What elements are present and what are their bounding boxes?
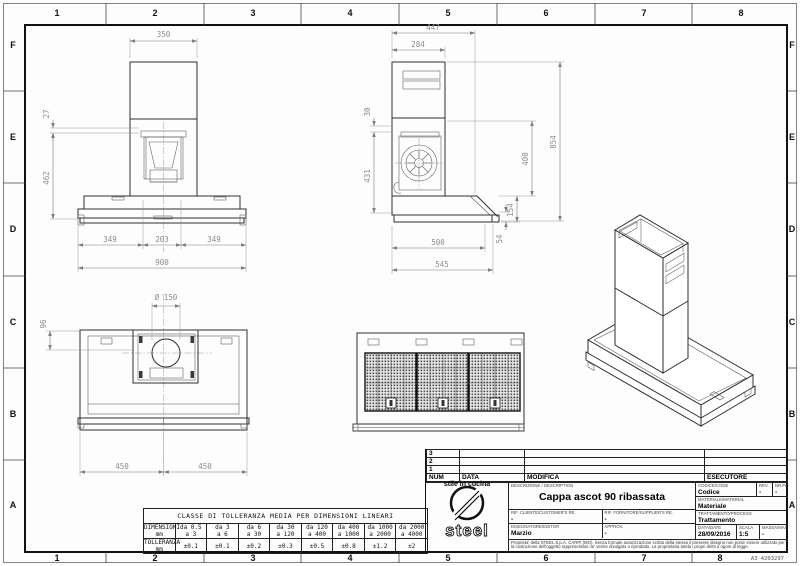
tolerance-range: da 30 a 120 <box>270 524 302 539</box>
customer-ref-value: - <box>509 516 602 523</box>
description-label: DESCRIZIONE / DESCRIPTION <box>509 483 695 489</box>
approval-value: - <box>603 530 696 537</box>
dim-label: 400 <box>521 152 530 166</box>
side-view-drawing: 447 284 854 400 154 54 500 <box>363 23 564 274</box>
designer-cell: DISEGNATORE/EDITOR Marzio <box>509 524 602 538</box>
side-fan <box>394 132 443 193</box>
grid-col-label: 3 <box>250 553 255 563</box>
grid-col-label: 4 <box>347 8 352 18</box>
code-cell: CODICE/CODE Codice <box>696 483 756 497</box>
tolerance-range: da 3 a 6 <box>207 524 239 539</box>
tolerance-value: ±0.3 <box>270 539 302 554</box>
tolerance-table-title: CLASSE DI TOLLERANZA MEDIA PER DIMENSION… <box>144 509 428 524</box>
tolerance-value: ±1.2 <box>364 539 396 554</box>
scale-cell: SCALA 1:5 <box>736 525 759 539</box>
legal-notice: Proprieta' della STEEL S.p.A. CARPI (MO)… <box>509 539 788 551</box>
treatment-value: Trattamento <box>696 517 788 524</box>
grid-col-label: 6 <box>543 553 548 563</box>
grid-row-label: B <box>10 409 17 419</box>
dim-label: 900 <box>155 258 169 267</box>
tolerance-range: da 2000 a 4000 <box>396 524 428 539</box>
supplier-ref-value: - <box>603 516 696 523</box>
front-view-drawing: 350 27 462 349 203 349 900 <box>42 30 246 272</box>
grid-col-label: 2 <box>152 553 157 563</box>
grid-col-label: 5 <box>445 8 450 18</box>
plan-view-drawing: Ø 150 96 450 450 <box>39 293 249 478</box>
tolerance-table: CLASSE DI TOLLERANZA MEDIA PER DIMENSION… <box>143 508 428 554</box>
dim-label: Ø 150 <box>155 293 178 302</box>
revision-table: 3 2 1 NUM DATA MODIFICA ESECUTORE <box>426 449 788 482</box>
dim-label: 450 <box>198 462 212 471</box>
designer-value: Marzio <box>509 530 602 537</box>
supplier-ref-cell: RIF. FORNITORE/SUPPLIER'S RE. - <box>602 510 696 524</box>
drawing-title: Cappa ascot 90 ribassata <box>509 491 695 503</box>
mass-value: - <box>760 531 788 538</box>
grid-col-label: 4 <box>347 553 352 563</box>
tolerance-range: da 6 a 30 <box>238 524 270 539</box>
front-canopy <box>78 196 246 225</box>
grid-row-label: F <box>10 40 16 50</box>
tolerance-value: ±0.2 <box>238 539 270 554</box>
tolerance-range: da 400 a 1000 <box>333 524 365 539</box>
isometric-view-drawing <box>586 215 755 426</box>
grid-row-label: F <box>789 40 795 50</box>
mass-label: MASSA/MASS kg <box>760 525 788 531</box>
description-cell: DESCRIZIONE / DESCRIPTION Cappa ascot 90… <box>509 483 695 510</box>
tolerance-value: ±0.5 <box>301 539 333 554</box>
dim-label: 462 <box>42 171 51 185</box>
grid-row-label: C <box>10 317 17 327</box>
material-cell: MATERIALE/MATERIAL Materiale <box>696 497 788 511</box>
grid-row-label: D <box>789 224 796 234</box>
code-value: Codice <box>696 489 756 496</box>
grid-col-label: 8 <box>717 553 722 563</box>
date-value: 28/09/2016 <box>696 531 736 538</box>
tolerance-range: da 0.5 a 3 <box>175 524 207 539</box>
sheet-format-code: A3 4203297 <box>751 556 784 562</box>
grid-col-label: 1 <box>54 553 59 563</box>
tolerance-value: ±0.1 <box>207 539 239 554</box>
dim-label: 284 <box>411 40 425 49</box>
grease-filters <box>365 353 520 411</box>
dim-label: 154 <box>506 203 515 217</box>
revision-header-esecutore: ESECUTORE <box>705 474 788 482</box>
approval-cell: APPROV. - <box>602 524 696 538</box>
tolerance-range: da 120 a 400 <box>301 524 333 539</box>
sheet-no-value: - <box>773 489 788 496</box>
grid-row-label: D <box>10 224 17 234</box>
company-logo: steel stile in cucina <box>426 483 509 551</box>
bottom-view-drawing <box>353 333 524 431</box>
grid-col-label: 6 <box>543 8 548 18</box>
dim-label: 54 <box>495 234 504 244</box>
plan-dimensions: Ø 150 96 450 450 <box>39 293 247 476</box>
dim-label: 447 <box>426 23 440 32</box>
grid-col-label: 2 <box>152 8 157 18</box>
revision-row-num: 1 <box>427 466 460 474</box>
revision-header-modifica: MODIFICA <box>525 474 705 482</box>
grid-col-label: 8 <box>738 8 743 18</box>
dim-label: 349 <box>207 235 221 244</box>
grid-col-label: 3 <box>250 8 255 18</box>
dim-label: 545 <box>435 260 449 269</box>
revision-row-num: 3 <box>427 450 460 458</box>
scale-value: 1:5 <box>737 531 759 538</box>
tolerance-dim-label: DIMENSIONI mm <box>144 524 176 539</box>
dim-label: 27 <box>42 109 51 118</box>
grid-col-label: 1 <box>54 8 59 18</box>
rev-cell: REV. - <box>756 483 772 497</box>
grid-row-label: A <box>789 500 796 510</box>
treatment-cell: TRATTAMENTO/PROCESS Trattamento <box>696 511 788 525</box>
logo-wordmark: steel <box>445 521 489 540</box>
tolerance-tol-label: TOLLERANZA mm <box>144 539 176 554</box>
dim-label: 854 <box>549 135 558 149</box>
revision-row-num: 2 <box>427 458 460 466</box>
tolerance-range: da 1000 a 2000 <box>364 524 396 539</box>
title-block: 3 2 1 NUM DATA MODIFICA ESECUTORE steel … <box>425 449 788 552</box>
dim-label: 500 <box>431 238 445 247</box>
sheet-no-cell: NR.FO. - <box>772 483 788 497</box>
drawing-sheet: A3 4203297 <box>0 0 800 566</box>
dim-label: 30 <box>363 107 372 117</box>
grid-row-label: B <box>789 409 796 419</box>
dim-label: 350 <box>157 30 171 39</box>
dim-label: 450 <box>115 462 129 471</box>
mass-cell: MASSA/MASS kg - <box>759 525 788 539</box>
grid-row-label: A <box>10 500 17 510</box>
grid-col-label: 7 <box>641 553 646 563</box>
dim-label: 431 <box>363 169 372 183</box>
grid-row-label: C <box>789 317 796 327</box>
grid-row-label: E <box>789 132 795 142</box>
material-value: Materiale <box>696 503 788 510</box>
tolerance-value: ±2 <box>396 539 428 554</box>
side-canopy <box>392 196 499 222</box>
sheet-no-label: NR.FO. <box>773 483 788 489</box>
grid-col-label: 5 <box>445 553 450 563</box>
plan-plate-brackets <box>139 336 194 378</box>
grid-col-label: 7 <box>641 8 646 18</box>
side-dimensions: 447 284 854 400 154 54 500 <box>363 23 564 274</box>
dim-label: 96 <box>39 319 48 329</box>
rev-value: - <box>757 489 772 496</box>
dim-label: 203 <box>155 235 169 244</box>
bottom-light-slots <box>368 339 522 345</box>
dim-label: 349 <box>103 235 117 244</box>
grid-row-label: E <box>10 132 16 142</box>
customer-ref-cell: RIF. CLIENTE/CUSTOMER'S RE. - <box>509 510 602 524</box>
date-cell: DATA/DATE 28/09/2016 <box>696 525 736 539</box>
tolerance-value: ±0.8 <box>333 539 365 554</box>
